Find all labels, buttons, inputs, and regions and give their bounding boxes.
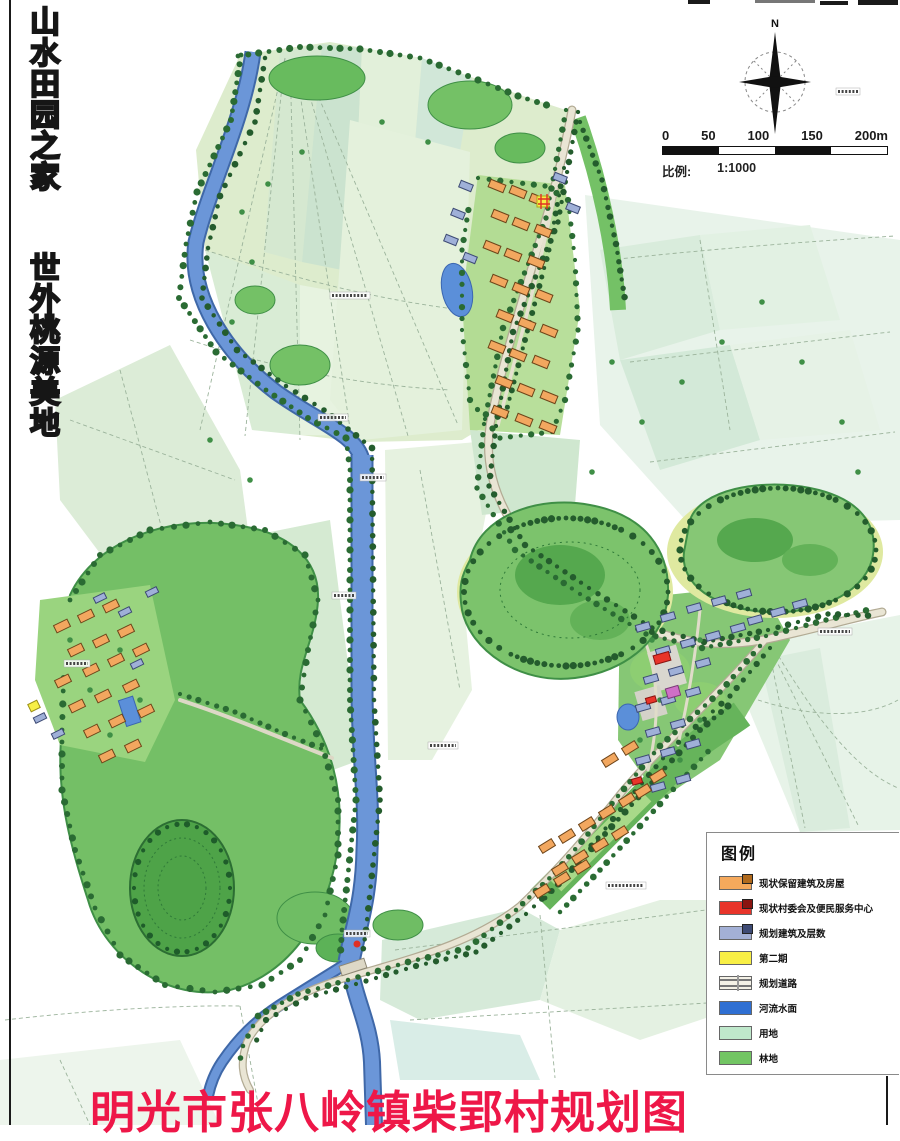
legend-panel: 图例 现状保留建筑及房屋现状村委会及便民服务中心规划建筑及层数第二期规划道路河流…	[706, 832, 899, 1075]
legend-item-planned-building: 规划建筑及层数	[719, 920, 895, 945]
slogan-column-2: 世外桃源美地	[26, 252, 56, 438]
legend-swatch	[719, 1001, 752, 1015]
scale-ratio-label: 比例:	[662, 161, 691, 180]
top-edge-mark	[820, 1, 848, 5]
scale-ratio-value: 1:1000	[717, 161, 756, 180]
legend-item-label: 第二期	[759, 951, 788, 965]
scale-tick-labels: 050100150200m	[662, 128, 888, 143]
legend-item-label: 现状村委会及便民服务中心	[759, 901, 873, 915]
legend-item-label: 规划建筑及层数	[759, 926, 826, 940]
slogan-column-1: 山水田园之家	[26, 6, 56, 192]
scale-bar: 050100150200m 比例: 1:1000	[662, 128, 888, 180]
legend-title: 图例	[721, 840, 895, 864]
bottom-right-rule	[886, 1076, 888, 1125]
scale-tick: 150	[801, 128, 823, 143]
legend-swatch	[719, 876, 752, 890]
legend-item-label: 林地	[759, 1051, 778, 1065]
point-marker	[354, 941, 361, 948]
compass-rose: N	[728, 16, 822, 138]
legend-swatch	[719, 926, 752, 940]
top-edge-mark	[755, 0, 815, 3]
legend-swatch	[719, 1026, 752, 1040]
legend-swatch	[719, 1051, 752, 1065]
legend-swatch	[719, 976, 752, 990]
left-border-rule	[9, 0, 11, 1125]
scale-tick: 100	[748, 128, 770, 143]
north-label: N	[771, 18, 779, 30]
legend-item-river-water: 河流水面	[719, 995, 895, 1020]
legend-item-forest: 林地	[719, 1045, 895, 1070]
scale-bar-segments	[662, 146, 888, 155]
legend-item-village-committee: 现状村委会及便民服务中心	[719, 895, 895, 920]
scale-tick: 0	[662, 128, 669, 143]
legend-item-planned-road: 规划道路	[719, 970, 895, 995]
scale-tick: 200m	[855, 128, 888, 143]
legend-item-existing-building: 现状保留建筑及房屋	[719, 870, 895, 895]
page-title: 明光市张八岭镇柴郢村规划图	[90, 1076, 688, 1141]
top-edge-mark	[858, 0, 898, 5]
legend-item-label: 规划道路	[759, 976, 797, 990]
legend-swatch	[719, 901, 752, 915]
legend-item-label: 现状保留建筑及房屋	[759, 876, 845, 890]
legend-item-phase-two: 第二期	[719, 945, 895, 970]
legend-item-label: 用地	[759, 1026, 778, 1040]
scale-tick: 50	[701, 128, 715, 143]
legend-item-land: 用地	[719, 1020, 895, 1045]
legend-swatch	[719, 951, 752, 965]
top-edge-mark	[688, 0, 710, 4]
legend-item-label: 河流水面	[759, 1001, 797, 1015]
